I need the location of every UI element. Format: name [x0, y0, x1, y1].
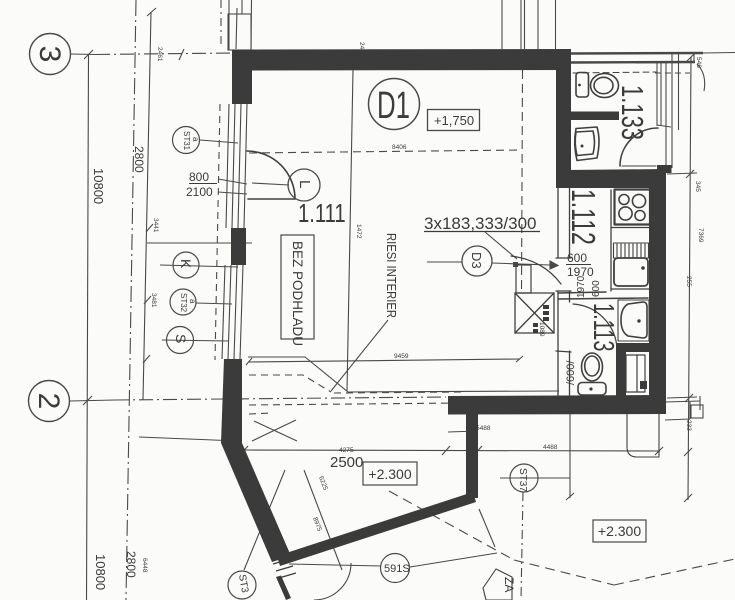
svg-text:ST37: ST37 — [517, 468, 528, 492]
svg-text:591S: 591S — [384, 563, 410, 575]
svg-text:10800: 10800 — [91, 168, 106, 204]
svg-text:3: 3 — [33, 46, 66, 63]
svg-text:800: 800 — [189, 170, 209, 184]
svg-text:a: a — [191, 137, 200, 142]
svg-text:2461: 2461 — [156, 47, 163, 62]
svg-text:1089: 1089 — [538, 322, 545, 337]
svg-text:1970: 1970 — [576, 275, 587, 298]
svg-text:2800: 2800 — [132, 146, 146, 173]
svg-text:L: L — [296, 180, 313, 188]
svg-text:7369: 7369 — [697, 228, 704, 243]
svg-text:D3: D3 — [469, 252, 484, 269]
svg-text:5488: 5488 — [476, 425, 491, 432]
svg-text:/600/: /600/ — [565, 360, 577, 385]
svg-text:8406: 8406 — [392, 144, 407, 151]
svg-text:233: 233 — [685, 420, 692, 431]
svg-text:4488: 4488 — [543, 444, 558, 451]
svg-text:1.133: 1.133 — [615, 85, 650, 140]
svg-text:2441: 2441 — [358, 42, 365, 57]
svg-text:a: a — [188, 299, 197, 304]
svg-text:600: 600 — [591, 280, 602, 297]
svg-text:9459: 9459 — [394, 353, 409, 360]
svg-text:ST31: ST31 — [182, 131, 191, 151]
svg-text:+2.300: +2.300 — [368, 466, 411, 482]
svg-text:1472: 1472 — [355, 224, 362, 239]
svg-text:2800: 2800 — [124, 551, 138, 578]
svg-text:ST32: ST32 — [179, 293, 188, 313]
svg-text:2100: 2100 — [186, 185, 213, 199]
svg-text:10800: 10800 — [93, 554, 108, 590]
svg-text:3481: 3481 — [150, 293, 157, 308]
svg-text:2: 2 — [32, 393, 65, 410]
svg-text:+1,750: +1,750 — [434, 113, 474, 128]
svg-text:4275: 4275 — [339, 447, 354, 454]
svg-text:345: 345 — [694, 181, 701, 192]
svg-text:S: S — [173, 334, 189, 343]
svg-text:BEZ PODHLADU: BEZ PODHLADU — [290, 241, 305, 346]
svg-text:3441: 3441 — [152, 218, 159, 233]
svg-text:ZA: ZA — [502, 577, 516, 592]
svg-text:546: 546 — [695, 57, 702, 68]
svg-text:D1: D1 — [377, 84, 410, 126]
svg-text:3x183,333/300: 3x183,333/300 — [424, 214, 537, 233]
svg-text:1.111: 1.111 — [298, 199, 346, 228]
svg-text:6448: 6448 — [141, 558, 148, 573]
svg-text:K: K — [178, 259, 194, 269]
svg-text:2500: 2500 — [330, 454, 363, 471]
svg-text:600: 600 — [567, 251, 587, 265]
svg-text:+2.300: +2.300 — [598, 523, 641, 539]
svg-text:1.113: 1.113 — [587, 303, 620, 352]
svg-text:255: 255 — [685, 276, 692, 287]
svg-text:1.112: 1.112 — [564, 189, 601, 245]
svg-text:RIESI INTERIER: RIESI INTERIER — [384, 233, 398, 318]
